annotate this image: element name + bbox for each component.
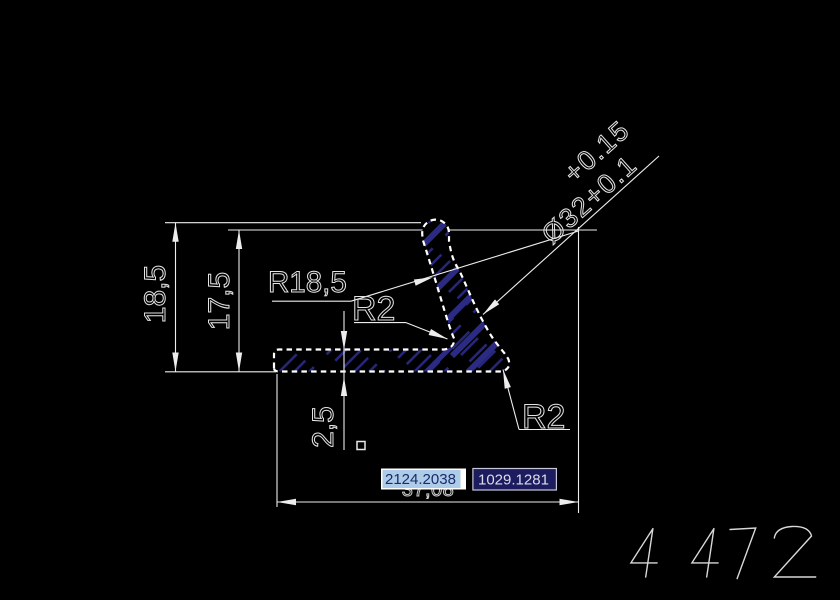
svg-text:R2: R2 bbox=[352, 290, 395, 328]
svg-text:18,5: 18,5 bbox=[139, 265, 172, 323]
svg-text:R2: R2 bbox=[522, 398, 565, 436]
svg-text:1029.1281: 1029.1281 bbox=[478, 472, 549, 489]
svg-text:2,5: 2,5 bbox=[307, 406, 340, 448]
svg-text:17,5: 17,5 bbox=[203, 272, 236, 330]
svg-text:2124.2038: 2124.2038 bbox=[385, 471, 456, 488]
svg-text:R18,5: R18,5 bbox=[268, 266, 347, 299]
